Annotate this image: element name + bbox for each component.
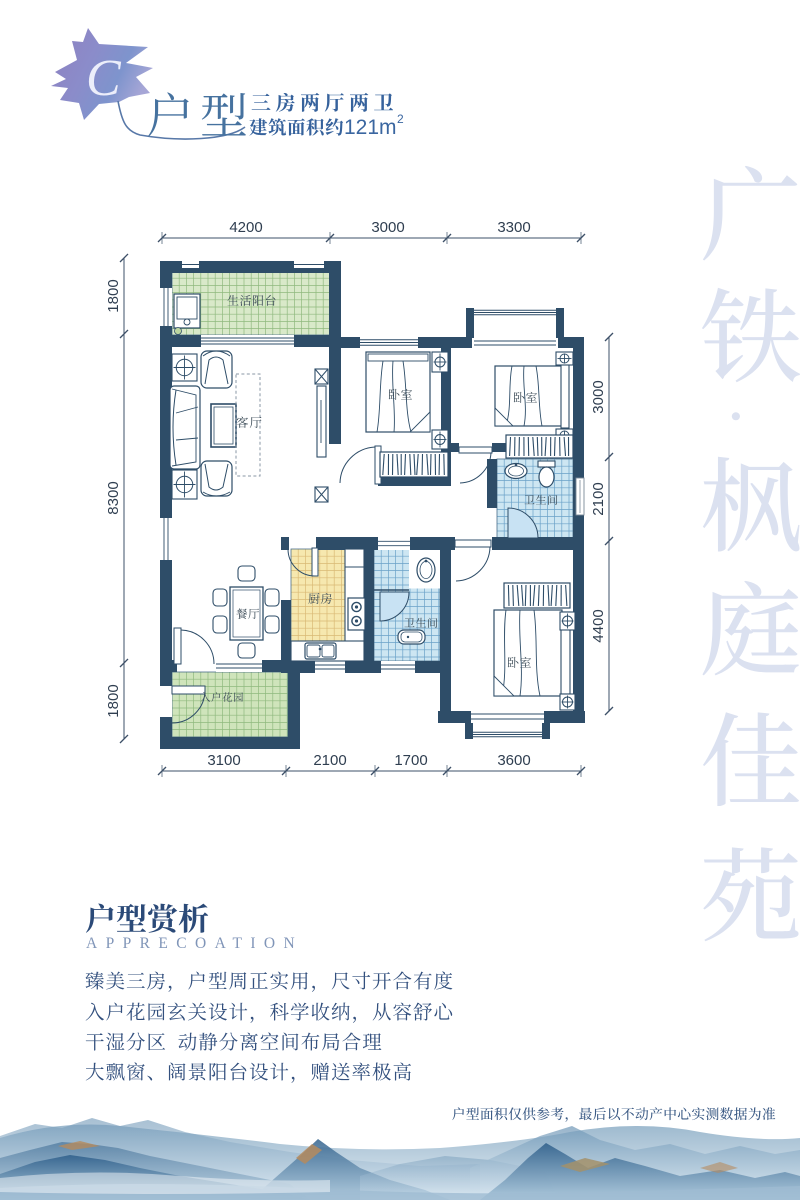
svg-text:3300: 3300 (497, 219, 530, 236)
svg-text:2: 2 (397, 112, 404, 126)
svg-text:2100: 2100 (313, 752, 346, 769)
svg-text:APPRECOATION: APPRECOATION (86, 935, 303, 952)
svg-text:C: C (86, 50, 122, 107)
svg-text:2100: 2100 (590, 482, 607, 515)
svg-text:8300: 8300 (105, 481, 122, 514)
svg-text:3600: 3600 (497, 752, 530, 769)
svg-text:3000: 3000 (371, 219, 404, 236)
svg-text:3100: 3100 (207, 752, 240, 769)
svg-text:3000: 3000 (590, 380, 607, 413)
svg-text:4200: 4200 (229, 219, 262, 236)
svg-text:4400: 4400 (590, 609, 607, 642)
svg-text:121m: 121m (344, 116, 397, 139)
svg-text:1700: 1700 (394, 752, 427, 769)
svg-text:1800: 1800 (105, 279, 122, 312)
svg-text:1800: 1800 (105, 684, 122, 717)
